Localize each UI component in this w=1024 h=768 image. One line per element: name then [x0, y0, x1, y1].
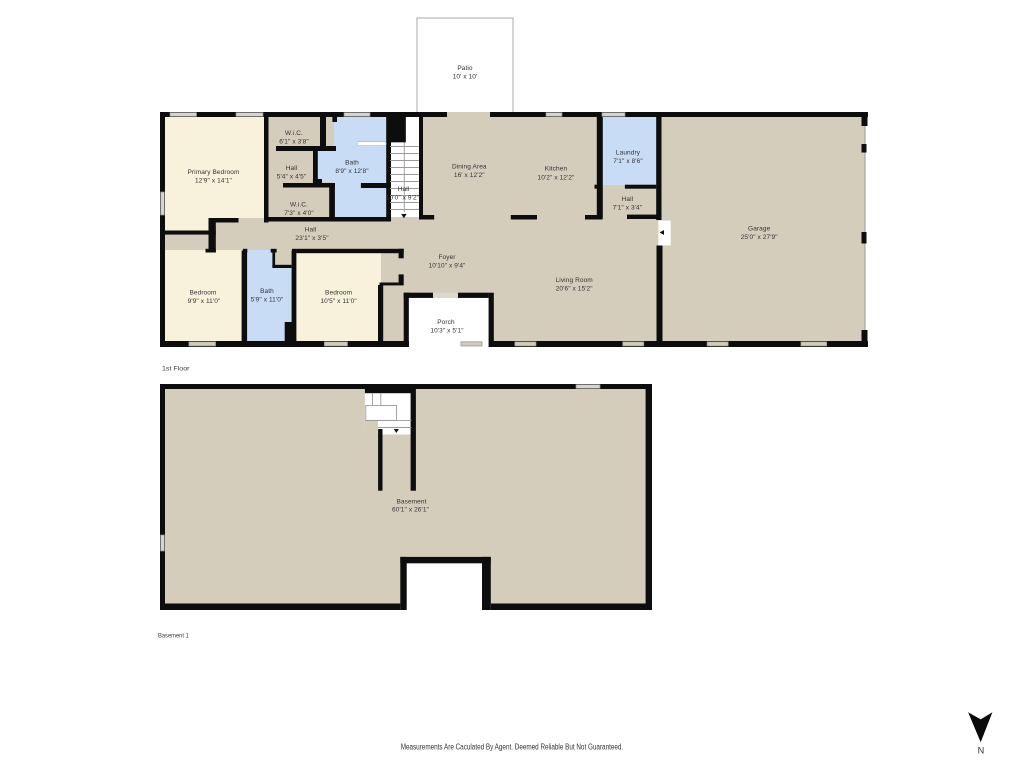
svg-text:Bedroom: Bedroom [189, 290, 216, 297]
svg-text:Foyer: Foyer [438, 254, 456, 261]
svg-text:20'6" x 15'2": 20'6" x 15'2" [556, 286, 594, 293]
svg-text:Kitchen: Kitchen [545, 166, 568, 173]
svg-text:10'10" x 9'4": 10'10" x 9'4" [429, 263, 467, 270]
svg-text:7'1" x 8'6": 7'1" x 8'6" [613, 158, 643, 165]
svg-text:Hall: Hall [286, 165, 298, 172]
svg-text:Hall: Hall [305, 227, 317, 234]
svg-text:23'1" x 3'5": 23'1" x 3'5" [295, 235, 329, 242]
svg-text:Laundry: Laundry [616, 149, 641, 156]
svg-text:W.i.C.: W.i.C. [290, 202, 308, 209]
svg-text:N: N [978, 746, 985, 756]
svg-text:Hall: Hall [398, 186, 410, 193]
svg-text:Primary Bedroom: Primary Bedroom [187, 169, 239, 176]
svg-text:10'3" x 5'1": 10'3" x 5'1" [430, 328, 464, 335]
svg-text:Bedroom: Bedroom [325, 290, 352, 297]
svg-text:5'4" x 4'5": 5'4" x 4'5" [277, 173, 307, 180]
svg-text:Basement 1: Basement 1 [158, 632, 189, 639]
svg-text:5'9" x 11'0": 5'9" x 11'0" [251, 296, 284, 303]
svg-text:9'9" x 11'0": 9'9" x 11'0" [188, 298, 221, 305]
svg-text:Hall: Hall [622, 196, 634, 203]
svg-text:1st Floor: 1st Floor [162, 365, 190, 372]
svg-text:W.i.C.: W.i.C. [285, 130, 303, 137]
svg-text:Garage: Garage [748, 226, 771, 233]
svg-text:60'1" x 26'1": 60'1" x 26'1" [392, 507, 430, 514]
svg-text:Basement: Basement [396, 498, 426, 505]
svg-text:10' x 10': 10' x 10' [453, 74, 478, 81]
svg-text:6'1" x 3'8": 6'1" x 3'8" [279, 138, 309, 145]
svg-text:12'9" x 14'1": 12'9" x 14'1" [195, 177, 233, 184]
svg-text:Patio: Patio [457, 65, 473, 72]
svg-text:7'3" x 4'0": 7'3" x 4'0" [284, 210, 314, 217]
svg-text:10'2" x 12'2": 10'2" x 12'2" [538, 174, 576, 181]
svg-text:Living Room: Living Room [556, 277, 593, 284]
svg-text:Bath: Bath [345, 160, 359, 167]
svg-text:Measurements Are Caculated By: Measurements Are Caculated By Agent. Dee… [401, 742, 624, 751]
svg-text:10'0" x 9'2": 10'0" x 9'2" [386, 194, 420, 201]
svg-text:8'9" x 12'8": 8'9" x 12'8" [335, 168, 369, 175]
svg-text:Dining Area: Dining Area [452, 164, 487, 171]
svg-text:Porch: Porch [437, 319, 455, 326]
svg-text:25'0" x 27'9": 25'0" x 27'9" [741, 234, 779, 241]
svg-text:Bath: Bath [260, 288, 274, 295]
svg-text:7'1" x 3'4": 7'1" x 3'4" [613, 204, 643, 211]
svg-text:16' x 12'2": 16' x 12'2" [454, 172, 485, 179]
svg-text:10'5" x 11'0": 10'5" x 11'0" [320, 298, 357, 305]
